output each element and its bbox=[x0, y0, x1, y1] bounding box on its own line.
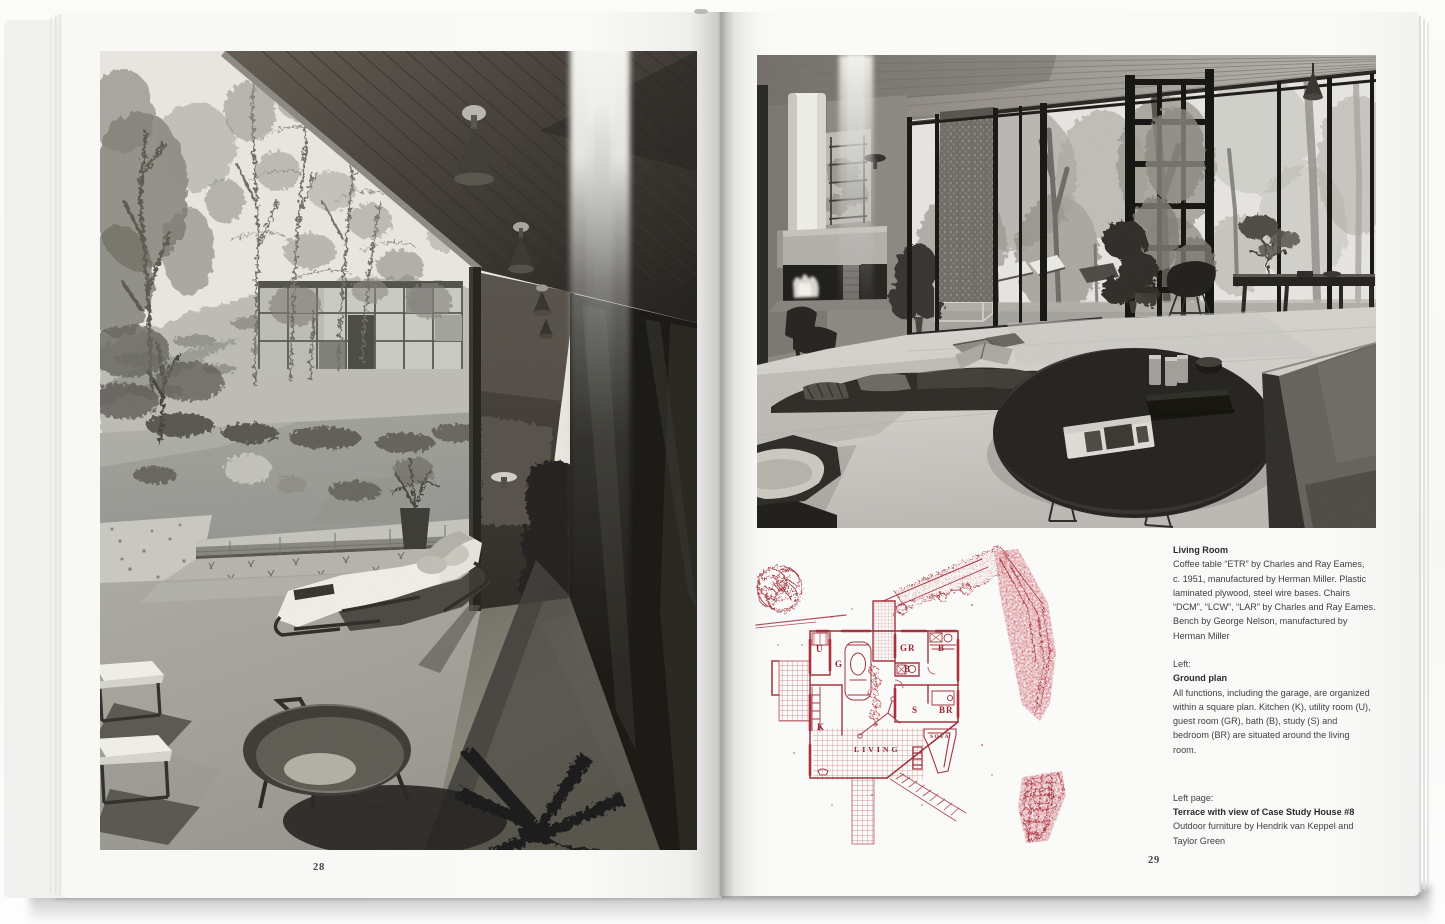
svg-text:SOFA: SOFA bbox=[930, 734, 950, 740]
svg-text:BR: BR bbox=[939, 705, 954, 715]
svg-text:S: S bbox=[912, 705, 918, 715]
svg-text:GR: GR bbox=[900, 643, 916, 653]
svg-text:K: K bbox=[817, 722, 825, 732]
svg-text:B: B bbox=[938, 643, 945, 653]
svg-text:LIVING: LIVING bbox=[854, 745, 901, 754]
svg-text:B: B bbox=[904, 664, 911, 674]
svg-text:U: U bbox=[816, 644, 824, 654]
svg-text:G: G bbox=[835, 659, 843, 669]
